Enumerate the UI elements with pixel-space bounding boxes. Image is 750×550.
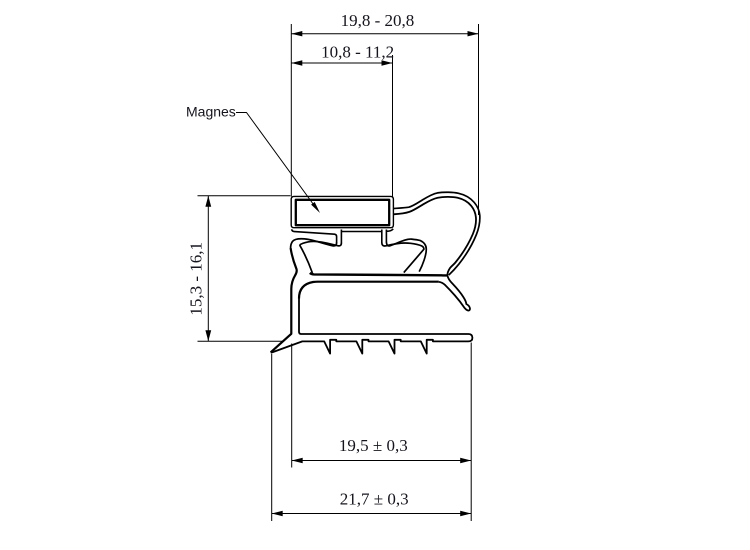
svg-text:15,3 - 16,1: 15,3 - 16,1 [187,242,206,316]
svg-text:10,8 - 11,2: 10,8 - 11,2 [321,43,394,62]
svg-text:19,5 ± 0,3: 19,5 ± 0,3 [339,436,408,455]
svg-text:Magnes: Magnes [186,103,236,119]
svg-text:19,8 - 20,8: 19,8 - 20,8 [341,11,415,30]
svg-text:21,7 ± 0,3: 21,7 ± 0,3 [340,489,409,508]
